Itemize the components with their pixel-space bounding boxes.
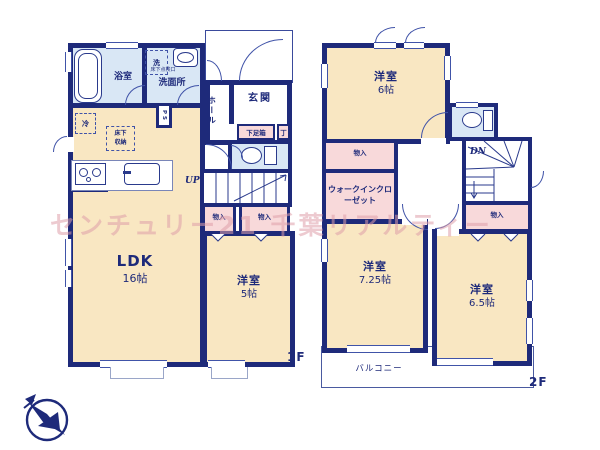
door-opening: [421, 138, 446, 145]
room-label-bedroom6: 洋室 6帖: [346, 70, 426, 97]
window: [437, 358, 493, 366]
floor-plan: 冷 床下収納 洗 PS 浴室 床下点検口 洗面所 玄関 下足箱 丁 ホール UP…: [0, 0, 600, 450]
folding-door-icon: [503, 233, 519, 242]
window: [321, 64, 328, 88]
north-compass-icon: [14, 390, 76, 446]
window: [526, 318, 533, 344]
floor-label-2f: 2F: [529, 375, 548, 389]
balcony-text: バルコニー: [355, 364, 402, 374]
room-label-bedroom65: 洋室 6.5帖: [436, 283, 528, 310]
bedroom65-size: 6.5帖: [436, 297, 528, 310]
window: [404, 42, 424, 49]
wic-text: ウォークインクローゼット: [328, 185, 392, 205]
window: [444, 56, 451, 80]
watermark: センチュリー21 千葉リアルティー: [50, 206, 493, 242]
window: [347, 345, 410, 353]
dn-text: DN: [470, 147, 486, 157]
bedroom725-name: 洋室: [332, 260, 418, 274]
room-label-bedroom725: 洋室 7.25帖: [332, 260, 418, 287]
wic-label: ウォークインクローゼット: [327, 184, 393, 206]
closet-text: 物入: [354, 149, 367, 157]
stairs-dn-label: DN: [470, 147, 486, 159]
window: [374, 42, 396, 49]
window: [321, 239, 328, 262]
window: [456, 102, 478, 108]
casement-window-arc: [405, 27, 425, 43]
casement-window-arc: [375, 27, 395, 43]
floor-2f-text: 2F: [529, 375, 548, 389]
bedroom6-name: 洋室: [346, 70, 426, 84]
toilet-bowl-2f: [462, 112, 482, 128]
watermark-text: センチュリー21 千葉リアルティー: [50, 211, 493, 240]
bedroom6-size: 6帖: [346, 84, 426, 97]
toilet-tank-2f: [483, 110, 493, 131]
closet-2f-a-label: 物入: [322, 149, 398, 157]
door-arc: [531, 171, 544, 188]
bedroom725-size: 7.25帖: [332, 274, 418, 287]
bedroom65-name: 洋室: [436, 283, 528, 297]
balcony-label: バルコニー: [346, 364, 412, 375]
